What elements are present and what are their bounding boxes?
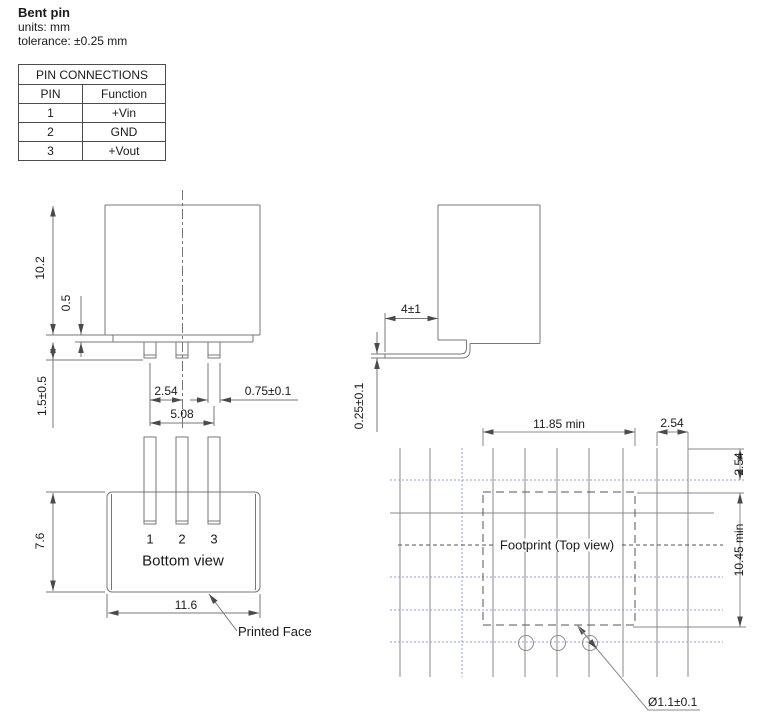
printed-face-label: Printed Face [238, 625, 312, 638]
dim-pin-span: 5.08 [170, 408, 193, 420]
pin-function-cell: +Vout [83, 142, 166, 161]
dim-standoff: 0.5 [60, 295, 72, 312]
dim-body-width: 11.6 [175, 599, 197, 611]
dim-pin-pitch: 2.54 [154, 385, 177, 397]
dim-body-height: 10.2 [34, 256, 46, 279]
table-row: 3 +Vout [19, 142, 166, 161]
dim-bent-length: 4±1 [401, 303, 421, 315]
mechanical-drawing-page: { "header": { "title": "Bent pin", "unit… [0, 0, 759, 727]
drawing-title: Bent pin [18, 6, 70, 19]
dim-body-depth: 7.6 [34, 533, 46, 550]
table-row: 2 GND [19, 123, 166, 142]
pin-1-number: 1 [146, 533, 153, 546]
dim-pin-length: 1.5±0.5 [36, 376, 48, 416]
pin-3-number: 3 [210, 533, 217, 546]
bottom-view-label: Bottom view [142, 554, 224, 569]
pin-number-cell: 3 [19, 142, 83, 161]
tolerance-note: tolerance: ±0.25 mm [18, 35, 127, 47]
units-note: units: mm [18, 21, 70, 33]
dim-footprint-pitch-top: 2.54 [660, 417, 683, 429]
pin-table-col-pin: PIN [19, 85, 83, 104]
table-row: 1 +Vin [19, 104, 166, 123]
pin-number-cell: 2 [19, 123, 83, 142]
dim-footprint-pitch-right: 2.54 [733, 452, 745, 475]
dim-hole-diameter: Ø1.1±0.1 [648, 696, 697, 708]
side-view-drawing [371, 205, 540, 432]
pin-connections-table: PIN CONNECTIONS PIN Function 1 +Vin 2 GN… [18, 64, 166, 161]
pin-function-cell: +Vin [83, 104, 166, 123]
dim-footprint-depth-min: 10.45 min [733, 524, 745, 577]
pin-table-col-function: Function [83, 85, 166, 104]
pin-table-title: PIN CONNECTIONS [19, 65, 166, 85]
footprint-drawing [390, 428, 746, 710]
footprint-label: Footprint (Top view) [495, 539, 619, 552]
pin-2-number: 2 [178, 533, 185, 546]
dim-footprint-width-min: 11.85 min [528, 418, 590, 430]
dim-pin-thickness: 0.25±0.1 [353, 383, 365, 430]
dim-pin-width: 0.75±0.1 [245, 385, 292, 397]
pin-number-cell: 1 [19, 104, 83, 123]
pin-function-cell: GND [83, 123, 166, 142]
